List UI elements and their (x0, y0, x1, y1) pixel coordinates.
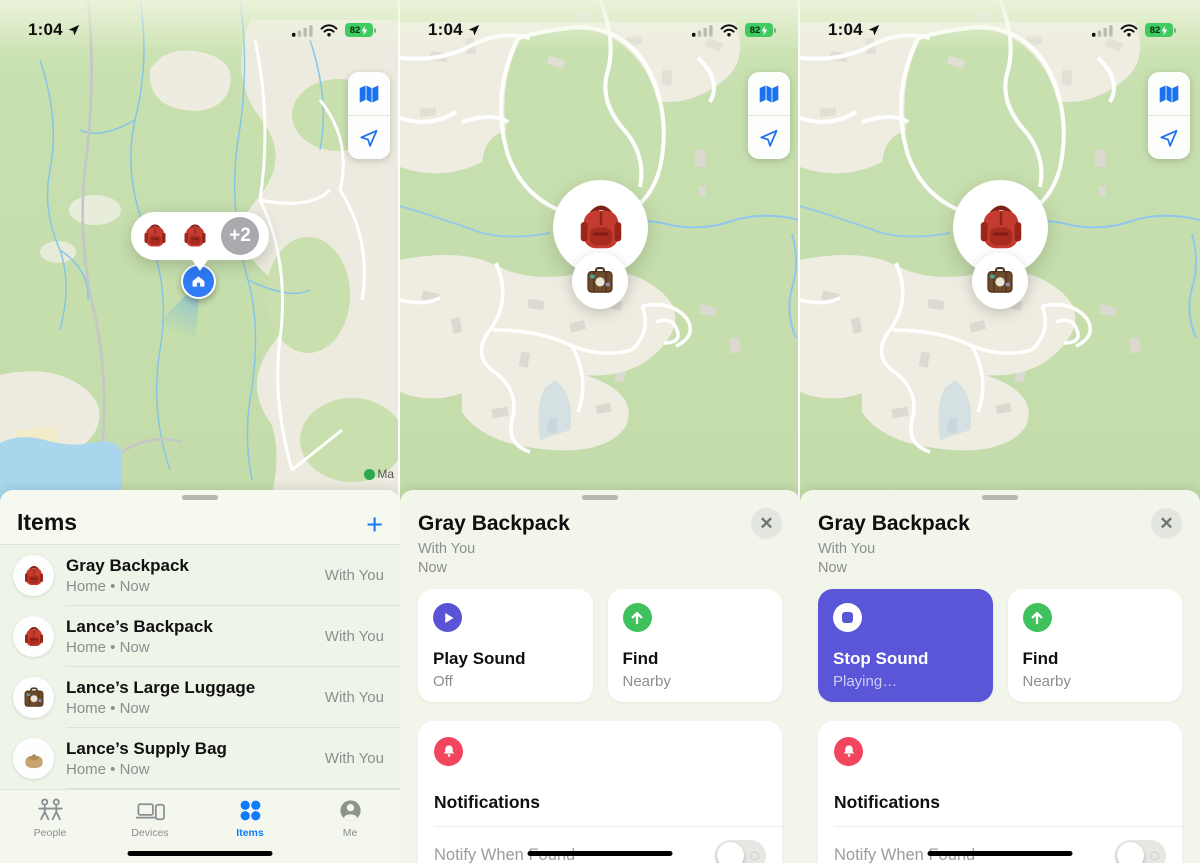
tab-me[interactable]: Me (300, 798, 400, 839)
cluster-more-badge[interactable]: +2 (221, 217, 259, 255)
bell-icon (434, 737, 463, 766)
tab-people[interactable]: People (0, 798, 100, 839)
brown-luggage-icon (22, 686, 46, 710)
item-status: With You (325, 689, 384, 706)
status-time: 1:04 (28, 20, 63, 40)
panel-items-list: 1:04 82 (0, 0, 400, 863)
brown-luggage-icon (984, 265, 1016, 297)
item-name: Gray Backpack (66, 556, 325, 576)
sheet-grabber[interactable] (182, 495, 218, 500)
battery-indicator: 82 (1145, 23, 1176, 37)
item-row-gray-backpack[interactable]: Gray Backpack Home • Now With You (0, 545, 400, 606)
status-bar: 1:04 82 (0, 0, 400, 48)
charging-bolt-icon (1161, 25, 1168, 36)
detail-header: Gray Backpack With You Now ✕ (818, 490, 1182, 576)
action-cards: Play Sound Off Find Nearby (418, 589, 782, 702)
add-item-button[interactable]: + (366, 514, 383, 536)
red-backpack-icon (141, 222, 169, 250)
notifications-title: Notifications (834, 792, 1166, 813)
detail-updated: Now (818, 560, 1182, 576)
play-sound-card[interactable]: Play Sound Off (418, 589, 593, 702)
me-avatar-icon (338, 798, 363, 823)
cellular-signal-icon (1092, 24, 1113, 37)
notify-when-found-toggle[interactable] (715, 840, 766, 863)
bell-icon (834, 737, 863, 766)
detail-subtitle: With You (818, 541, 1182, 557)
battery-percent: 82 (1150, 25, 1161, 36)
wifi-icon (1120, 24, 1138, 37)
wifi-icon (720, 24, 738, 37)
toggle-knob (1117, 842, 1144, 863)
wifi-icon (320, 24, 338, 37)
charging-bolt-icon (361, 25, 368, 36)
sheet-title: Items (17, 509, 77, 536)
charging-bolt-icon (761, 25, 768, 36)
toggle-knob (717, 842, 744, 863)
items-sheet: Items + Gray Backpack Home • Now With Yo… (0, 490, 400, 863)
find-card[interactable]: Find Nearby (608, 589, 783, 702)
item-detail-sheet: Gray Backpack With You Now ✕ Play Sound … (400, 490, 800, 863)
notify-when-found-toggle[interactable] (1115, 840, 1166, 863)
tracking-arrow-icon (1158, 127, 1180, 149)
home-indicator[interactable] (928, 851, 1073, 857)
locate-me-button[interactable] (1148, 116, 1190, 159)
play-icon (433, 603, 462, 632)
tab-devices[interactable]: Devices (100, 798, 200, 839)
notifications-title: Notifications (434, 792, 766, 813)
item-meta: Home • Now (66, 700, 325, 717)
locate-me-button[interactable] (748, 116, 790, 159)
cellular-signal-icon (292, 24, 313, 37)
battery-indicator: 82 (745, 23, 776, 37)
detail-title: Gray Backpack (818, 512, 1182, 536)
panel-item-detail-stop: 1:04 82 (800, 0, 1200, 863)
map-controls (748, 72, 790, 159)
panel-item-detail-play: 1:04 82 (400, 0, 800, 863)
item-name: Lance’s Large Luggage (66, 678, 325, 698)
item-row-lances-supply-bag[interactable]: Lance’s Supply Bag Home • Now With You (0, 728, 400, 789)
item-meta: Home • Now (66, 761, 325, 778)
item-status: With You (325, 567, 384, 584)
location-active-icon (67, 23, 81, 37)
item-meta: Home • Now (66, 639, 325, 656)
map-controls (1148, 72, 1190, 159)
action-cards: Stop Sound Playing… Find Nearby (818, 589, 1182, 702)
home-indicator[interactable] (128, 851, 273, 857)
item-name: Lance’s Supply Bag (66, 739, 325, 759)
battery-indicator: 82 (345, 23, 376, 37)
items-grid-icon (238, 798, 263, 823)
location-active-icon (867, 23, 881, 37)
detail-title: Gray Backpack (418, 512, 782, 536)
map-icon (757, 83, 781, 105)
find-card[interactable]: Find Nearby (1008, 589, 1183, 702)
map-style-button[interactable] (348, 72, 390, 115)
red-backpack-icon (574, 201, 628, 255)
item-name: Lance’s Backpack (66, 617, 325, 637)
battery-percent: 82 (750, 25, 761, 36)
red-backpack-icon (181, 222, 209, 250)
map-style-button[interactable] (748, 72, 790, 115)
close-button[interactable]: ✕ (1151, 508, 1182, 539)
red-backpack-icon (974, 201, 1028, 255)
luggage-pin[interactable] (972, 253, 1028, 309)
item-row-lances-large-luggage[interactable]: Lance’s Large Luggage Home • Now With Yo… (0, 667, 400, 728)
status-time: 1:04 (828, 20, 863, 40)
home-icon (189, 272, 208, 291)
tracking-arrow-icon (358, 127, 380, 149)
devices-icon (136, 801, 165, 823)
tracking-arrow-icon (758, 127, 780, 149)
detail-subtitle: With You (418, 541, 782, 557)
item-detail-sheet: Gray Backpack With You Now ✕ Stop Sound … (800, 490, 1200, 863)
status-bar: 1:04 82 (400, 0, 800, 48)
arrow-up-icon (623, 603, 652, 632)
item-status: With You (325, 750, 384, 767)
locate-me-button[interactable] (348, 116, 390, 159)
item-cluster-pin[interactable]: +2 (131, 212, 269, 271)
stop-icon (833, 603, 862, 632)
notifications-card: Notifications Notify When Found (418, 721, 782, 863)
notifications-card: Notifications Notify When Found (818, 721, 1182, 863)
status-bar: 1:04 82 (800, 0, 1200, 48)
maps-legal-badge: Ma (364, 467, 394, 481)
detail-updated: Now (418, 560, 782, 576)
arrow-up-icon (1023, 603, 1052, 632)
brown-luggage-icon (584, 265, 616, 297)
tan-bag-icon (22, 747, 46, 771)
toggle-off-mark (1150, 851, 1159, 860)
stop-sound-card[interactable]: Stop Sound Playing… (818, 589, 993, 702)
map-controls (348, 72, 390, 159)
cellular-signal-icon (692, 24, 713, 37)
red-backpack-icon (22, 625, 46, 649)
close-button[interactable]: ✕ (751, 508, 782, 539)
people-icon (36, 798, 65, 823)
map-style-button[interactable] (1148, 72, 1190, 115)
home-indicator[interactable] (528, 851, 673, 857)
item-meta: Home • Now (66, 578, 325, 595)
battery-percent: 82 (350, 25, 361, 36)
map-icon (1157, 83, 1181, 105)
item-row-lances-backpack[interactable]: Lance’s Backpack Home • Now With You (0, 606, 400, 667)
luggage-pin[interactable] (572, 253, 628, 309)
toggle-off-mark (750, 851, 759, 860)
map-icon (357, 83, 381, 105)
status-time: 1:04 (428, 20, 463, 40)
maps-logo-icon (364, 469, 375, 480)
location-active-icon (467, 23, 481, 37)
item-status: With You (325, 628, 384, 645)
detail-header: Gray Backpack With You Now ✕ (418, 490, 782, 576)
screenshot-triptych: 1:04 82 (0, 0, 1200, 863)
tab-items[interactable]: Items (200, 798, 300, 839)
red-backpack-icon (22, 564, 46, 588)
